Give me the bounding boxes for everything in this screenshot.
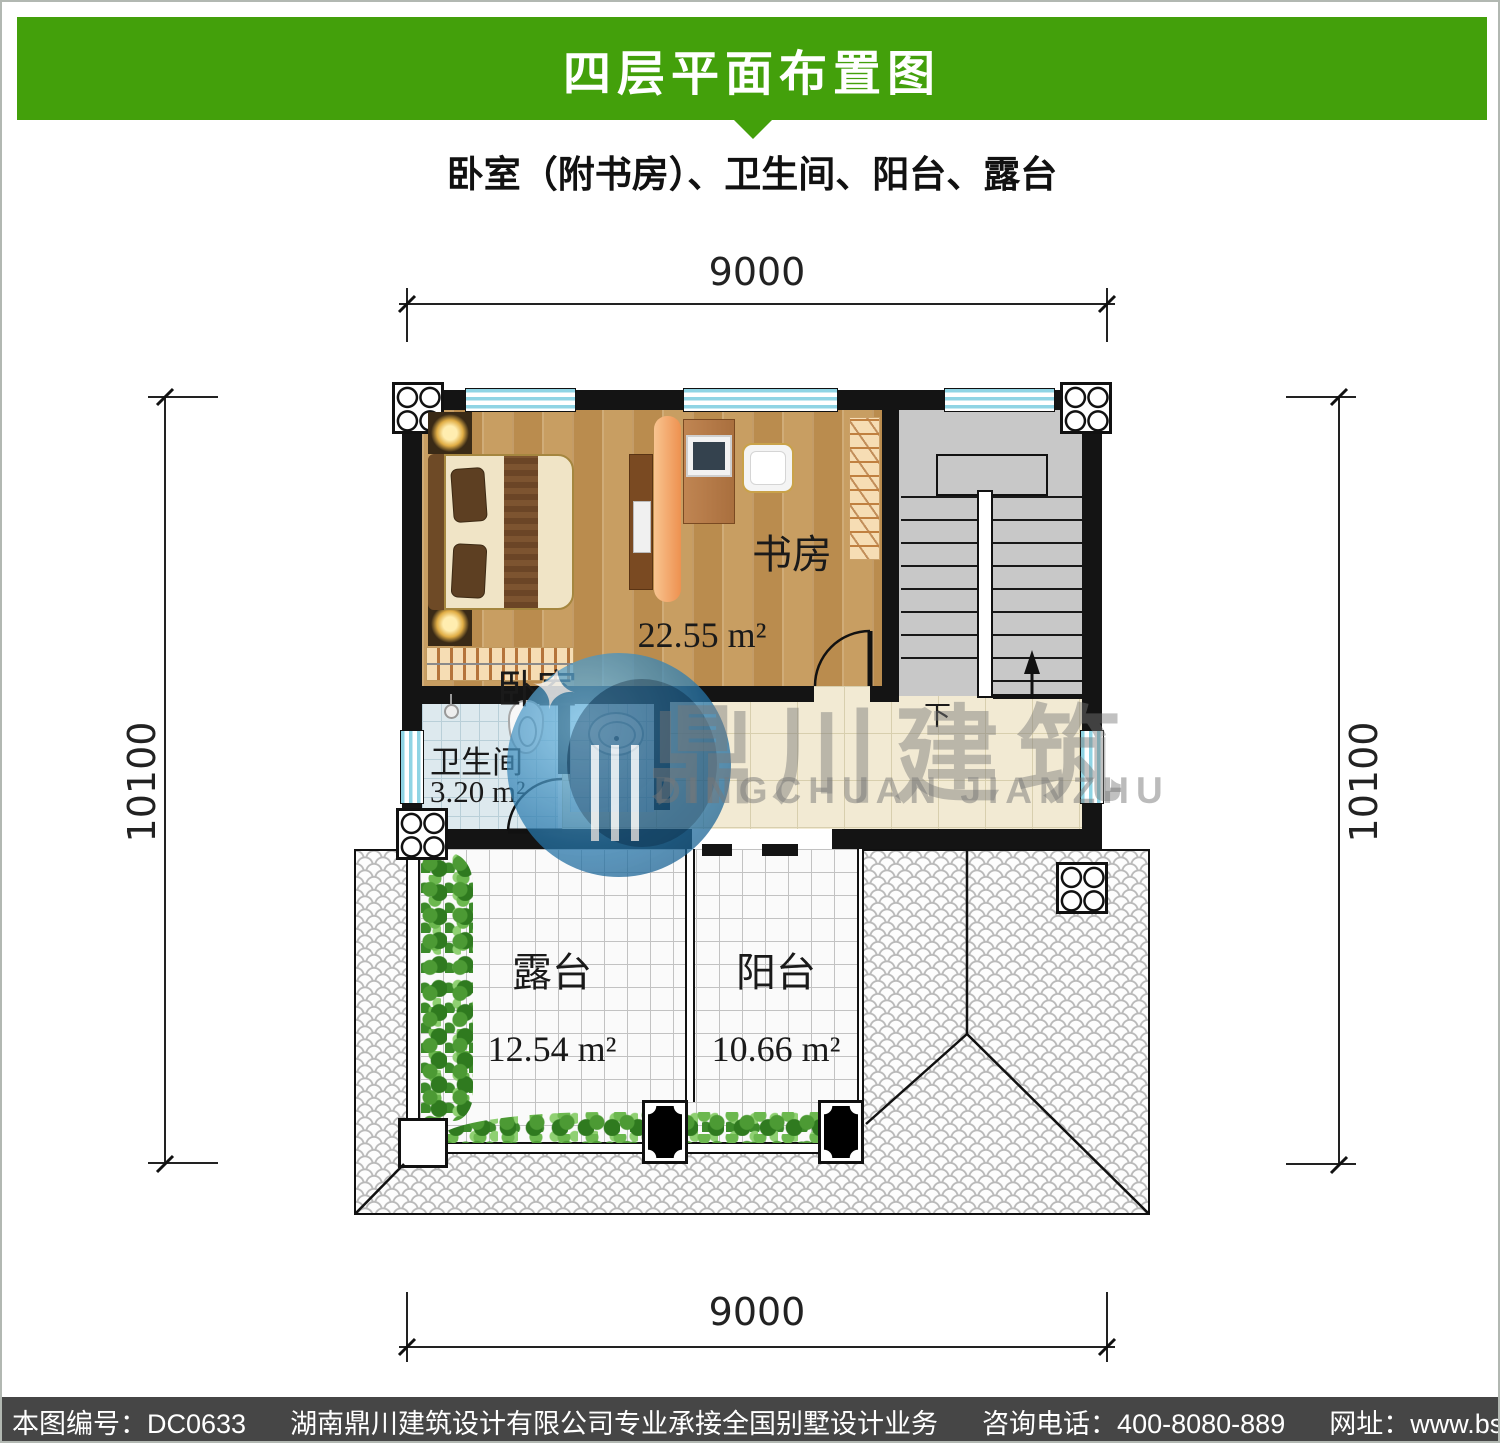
- bedside-lamp-top: [428, 412, 472, 454]
- terrace-left-railing: [406, 849, 420, 1154]
- dim-right-ext-top: [1286, 396, 1356, 398]
- floor-plan-sheet: 四层平面布置图 卧室（附书房）、卫生间、阳台、露台 9000 9000 1010…: [0, 0, 1500, 1443]
- computer-monitor: [686, 435, 732, 477]
- dim-right-value: 10100: [1342, 682, 1386, 882]
- stair-flight-right: [993, 496, 1082, 698]
- bed: [428, 454, 574, 610]
- stair-divider: [977, 490, 993, 698]
- study-label: 书房: [712, 522, 872, 580]
- study-cabinet: [629, 454, 653, 590]
- pillow-top: [450, 467, 488, 523]
- balcony-door-track-right: [762, 844, 798, 856]
- balcony-label: 阳台: [676, 940, 876, 998]
- dim-top-value: 9000: [557, 250, 957, 294]
- watermark-en: DINGCHUAN JIANZHU: [654, 770, 1170, 812]
- window-north-study: [683, 388, 838, 412]
- terrace-pillar-right: [818, 1100, 864, 1164]
- banner-pointer: [734, 120, 772, 139]
- stair-flight-left: [901, 496, 977, 662]
- terrace-area: 12.54 m²: [452, 1028, 652, 1070]
- footer-phone: 咨询电话：400-8080-889: [982, 1402, 1285, 1441]
- dim-top-ext-left: [406, 288, 408, 342]
- dim-top-ext-right: [1106, 288, 1108, 342]
- dim-bottom-line: [399, 1346, 1115, 1348]
- pillow-bottom: [451, 543, 488, 599]
- combined-area-label: 22.55 m²: [602, 614, 802, 656]
- dim-left-ext-top: [148, 396, 218, 398]
- balcony-door-track-left: [702, 844, 732, 856]
- balcony-area: 10.66 m²: [676, 1028, 876, 1070]
- bed-headboard: [428, 454, 444, 610]
- corner-column-sw: [396, 808, 448, 860]
- terrace-corner-post: [398, 1118, 448, 1168]
- orange-bench: [654, 416, 681, 602]
- dim-left-line: [164, 397, 166, 1164]
- dim-left-ext-bottom: [148, 1162, 218, 1164]
- cabinet-front: [633, 501, 651, 553]
- corner-column-ne: [1060, 382, 1112, 434]
- dim-bottom-ext-right: [1106, 1292, 1108, 1362]
- footer-serial: 本图编号：DC0633: [12, 1402, 246, 1441]
- dim-top-line: [399, 303, 1115, 305]
- shower-hose: [450, 694, 452, 706]
- footer-company: 湖南鼎川建筑设计有限公司专业承接全国别墅设计业务: [290, 1402, 938, 1441]
- window-west-bathroom: [400, 730, 424, 804]
- dim-bottom-value: 9000: [557, 1290, 957, 1334]
- corner-column-se: [1056, 862, 1108, 914]
- floor-summary: 卧室（附书房）、卫生间、阳台、露台: [2, 144, 1500, 198]
- desk-chair: [742, 443, 794, 493]
- dim-right-line: [1338, 397, 1340, 1165]
- south-wall-right: [832, 829, 1102, 849]
- title-banner: 四层平面布置图: [17, 17, 1487, 120]
- window-north-stair: [944, 388, 1055, 412]
- footer-bar: 本图编号：DC0633 湖南鼎川建筑设计有限公司专业承接全国别墅设计业务 咨询电…: [2, 1397, 1500, 1443]
- dim-right-ext-bottom: [1286, 1163, 1356, 1165]
- terrace-label: 露台: [452, 940, 652, 998]
- bed-blanket: [504, 456, 538, 608]
- dim-left-value: 10100: [120, 682, 164, 882]
- stair-west-wall: [882, 410, 899, 686]
- dim-bottom-ext-left: [406, 1292, 408, 1362]
- window-north-bedroom: [465, 388, 576, 412]
- terrace-pillar-middle: [642, 1100, 688, 1164]
- footer-website: 网址：www.bstzcs.com: [1329, 1402, 1500, 1441]
- page-title: 四层平面布置图: [563, 34, 941, 104]
- terrace-bottom-railing: [406, 1142, 864, 1154]
